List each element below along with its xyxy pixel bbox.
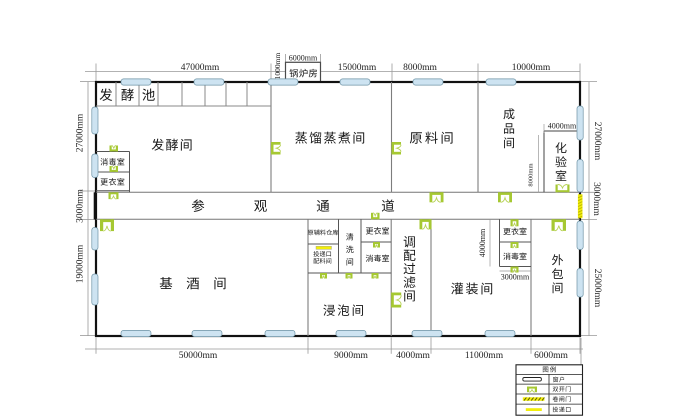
svg-text:27000mm: 27000mm — [76, 113, 86, 152]
svg-text:15000mm: 15000mm — [338, 63, 377, 73]
svg-text:8000mm: 8000mm — [403, 63, 437, 73]
svg-text:3000mm: 3000mm — [76, 189, 86, 223]
svg-text:9000mm: 9000mm — [334, 351, 368, 361]
svg-text:6000mm: 6000mm — [289, 53, 318, 62]
svg-text:1000mm: 1000mm — [273, 53, 282, 80]
svg-text:3000mm: 3000mm — [501, 273, 530, 282]
svg-text:4000mm: 4000mm — [396, 351, 430, 361]
svg-text:10000mm: 10000mm — [512, 63, 551, 73]
svg-text:6000mm: 6000mm — [534, 351, 568, 361]
svg-text:47000mm: 47000mm — [181, 63, 220, 73]
svg-text:3000mm: 3000mm — [591, 182, 601, 216]
svg-text:4000mm: 4000mm — [548, 122, 577, 131]
svg-text:11000mm: 11000mm — [465, 351, 504, 361]
svg-text:25000mm: 25000mm — [592, 269, 602, 308]
svg-text:27000mm: 27000mm — [592, 122, 602, 161]
svg-text:50000mm: 50000mm — [179, 351, 218, 361]
svg-text:8000mm: 8000mm — [528, 163, 535, 186]
svg-text:19000mm: 19000mm — [76, 244, 86, 283]
svg-text:4000mm: 4000mm — [478, 228, 487, 257]
